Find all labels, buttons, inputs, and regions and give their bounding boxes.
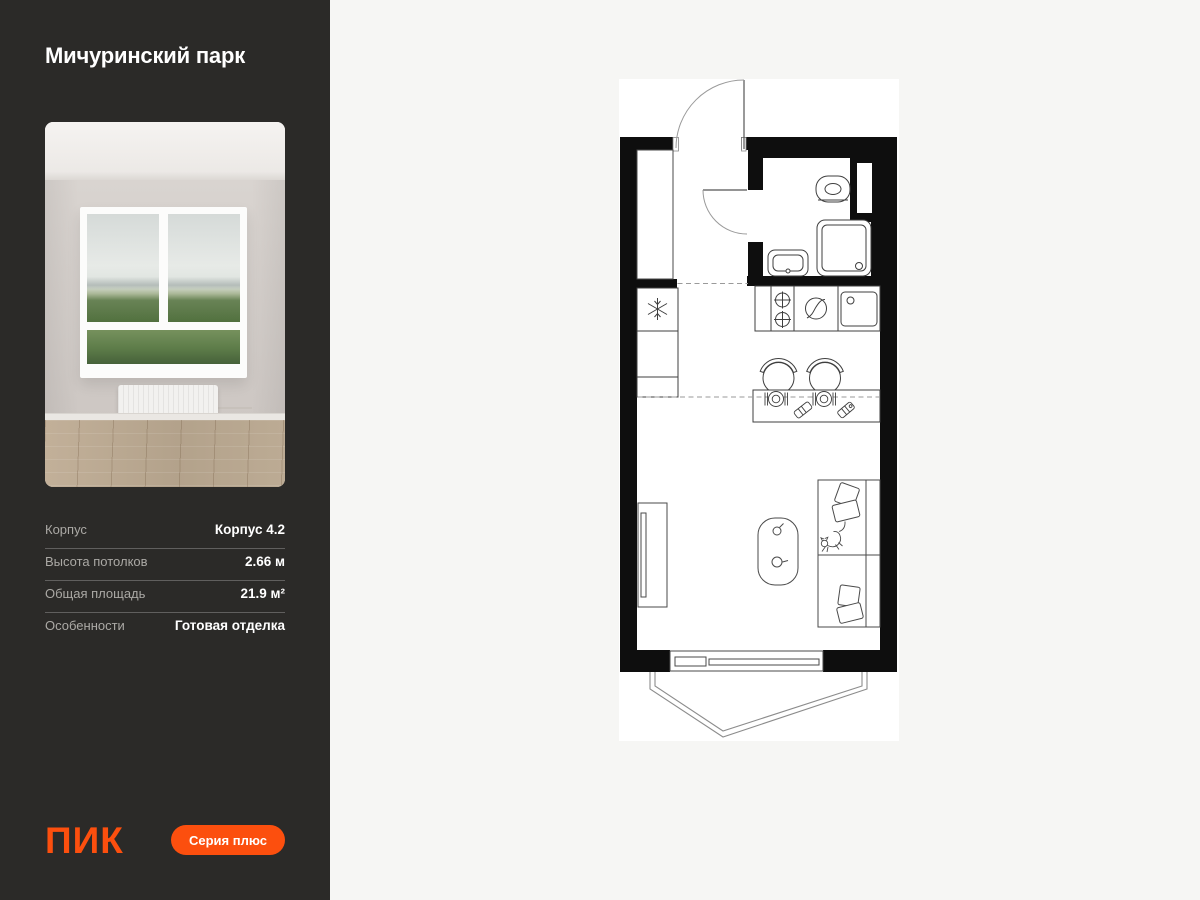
detail-value: 21.9 м² — [240, 586, 285, 601]
kitchen-sink — [841, 292, 877, 326]
detail-label: Особенности — [45, 618, 125, 633]
window-pane-right — [168, 214, 240, 322]
detail-value: Готовая отделка — [175, 618, 285, 633]
detail-row-ceiling-height: Высота потолков 2.66 м — [45, 549, 285, 581]
detail-row-features: Особенности Готовая отделка — [45, 613, 285, 644]
badge-label: Серия плюс — [189, 833, 267, 848]
hall-closet — [637, 150, 673, 279]
detail-label: Корпус — [45, 522, 87, 537]
photo-window — [80, 207, 247, 378]
coffee-table — [758, 518, 798, 585]
hob-symbol — [806, 298, 827, 319]
dining-chairs — [760, 359, 843, 394]
detail-row-total-area: Общая площадь 21.9 м² — [45, 581, 285, 613]
apartment-photo — [45, 122, 285, 487]
bed — [818, 480, 880, 627]
details-list: Корпус Корпус 4.2 Высота потолков 2.66 м… — [45, 517, 285, 644]
detail-label: Высота потолков — [45, 554, 148, 569]
photo-baseboard — [45, 413, 285, 420]
photo-wood-floor — [45, 420, 285, 487]
radiator-pipe — [218, 407, 252, 409]
balcony — [650, 672, 867, 737]
photo-ceiling — [45, 122, 285, 180]
floor-plan-image — [619, 79, 899, 741]
page-title: Мичуринский парк — [45, 43, 305, 69]
seria-plus-badge[interactable]: Серия плюс — [171, 825, 285, 855]
sidebar-footer: ПИК Серия плюс — [45, 822, 285, 858]
detail-label: Общая площадь — [45, 586, 145, 601]
bathroom-door — [703, 190, 747, 234]
property-sidebar: Мичуринский парк Корпус Корпус 4.2 Высот… — [0, 0, 330, 900]
detail-value: Корпус 4.2 — [215, 522, 285, 537]
detail-value: 2.66 м — [245, 554, 285, 569]
balcony-window — [670, 651, 823, 671]
detail-row-korpus: Корпус Корпус 4.2 — [45, 517, 285, 549]
window-transom-pane — [87, 330, 240, 364]
kitchen-counter — [755, 286, 880, 331]
window-pane-left — [87, 214, 159, 322]
floor-plan-page — [619, 79, 899, 741]
pik-logo[interactable]: ПИК — [45, 822, 124, 859]
entrance-door — [676, 80, 744, 149]
tv-wardrobe — [638, 503, 667, 607]
